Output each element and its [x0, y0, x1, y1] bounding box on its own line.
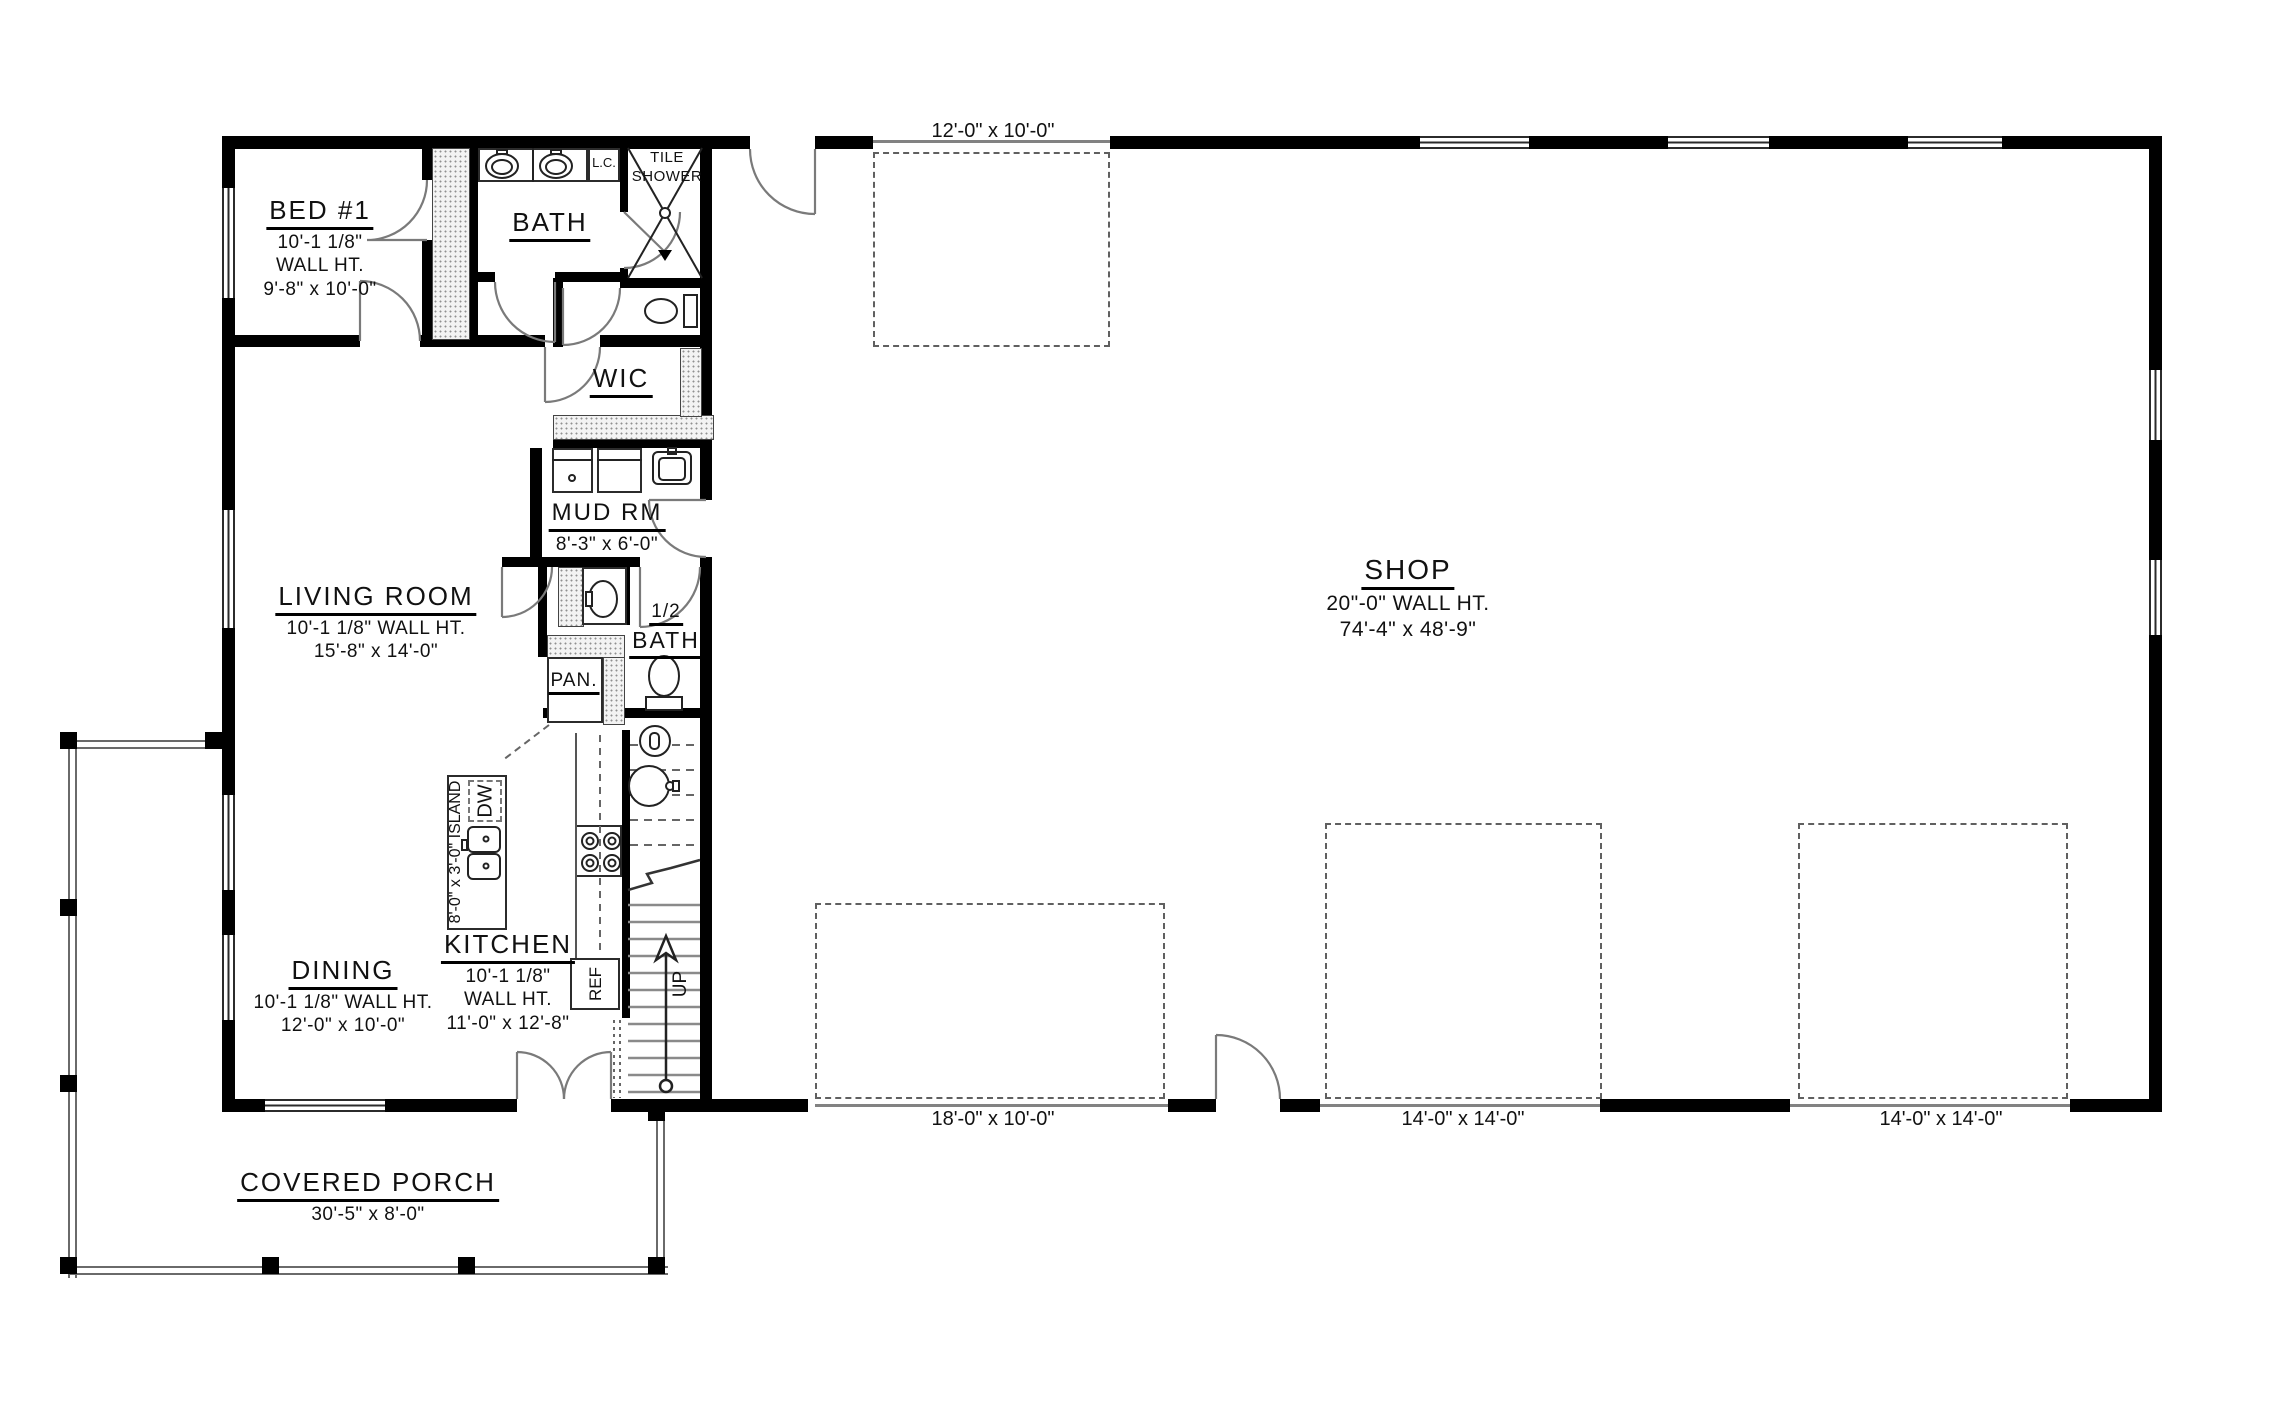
- room-title: DINING: [288, 956, 397, 990]
- room-label-bath: BATH: [509, 208, 590, 242]
- room-label-covered-porch: COVERED PORCH 30'-5" x 8'-0": [237, 1168, 499, 1225]
- room-label-shop: SHOP 20"-0" WALL HT. 74'-4" x 48'-9": [1326, 554, 1489, 641]
- stairs-up-arrow: [656, 936, 676, 1092]
- room-title: LIVING ROOM: [275, 582, 476, 616]
- garage-door-dimension-label: 14'-0" x 14'-0": [1401, 1108, 1524, 1131]
- room-label-tile-shower: TILE SHOWER: [632, 150, 703, 186]
- garage-door-dimension-label: 18'-0" x 10'-0": [931, 1108, 1054, 1131]
- floor-plan: BED #1 10'-1 1/8" WALL HT. 9'-8" x 10'-0…: [0, 0, 2284, 1408]
- room-label-wic: WIC: [590, 364, 653, 398]
- room-label-living-room: LIVING ROOM 10'-1 1/8" WALL HT. 15'-8" x…: [275, 582, 476, 663]
- mud-room-fixtures: [552, 448, 691, 484]
- room-title: SHOP: [1361, 554, 1454, 590]
- island-label: 8'-0" x 3'-0" ISLAND: [447, 781, 465, 924]
- room-title: BED #1: [266, 196, 374, 230]
- kitchen-fixtures: [462, 725, 620, 1098]
- room-title: KITCHEN: [441, 930, 575, 964]
- room-label-pantry: PAN.: [549, 670, 600, 695]
- dishwasher-label: DW: [475, 784, 498, 817]
- stairs: [628, 726, 700, 1092]
- room-label-kitchen: KITCHEN 10'-1 1/8" WALL HT. 11'-0" x 12'…: [441, 930, 575, 1034]
- room-label-bed1: BED #1 10'-1 1/8" WALL HT. 9'-8" x 10'-0…: [263, 196, 376, 300]
- room-label-half-bath: 1/2 BATH: [629, 601, 703, 659]
- room-title: BATH: [509, 208, 590, 242]
- stairs-up-label: UP: [670, 971, 692, 997]
- label-linen-cabinet: L.C.: [592, 156, 616, 171]
- room-title: MUD RM: [549, 500, 666, 532]
- room-label-dining: DINING 10'-1 1/8" WALL HT. 12'-0" x 10'-…: [254, 956, 433, 1037]
- garage-door-dimension-label: 14'-0" x 14'-0": [1879, 1108, 2002, 1131]
- room-title: PAN.: [549, 670, 600, 695]
- garage-door-dimension-label: 12'-0" x 10'-0": [931, 120, 1054, 143]
- room-title: COVERED PORCH: [237, 1168, 499, 1202]
- room-label-mud-room: MUD RM 8'-3" x 6'-0": [549, 500, 666, 555]
- room-title: WIC: [590, 364, 653, 398]
- refrigerator-label: REF: [586, 967, 606, 1001]
- room-title: BATH: [629, 628, 703, 659]
